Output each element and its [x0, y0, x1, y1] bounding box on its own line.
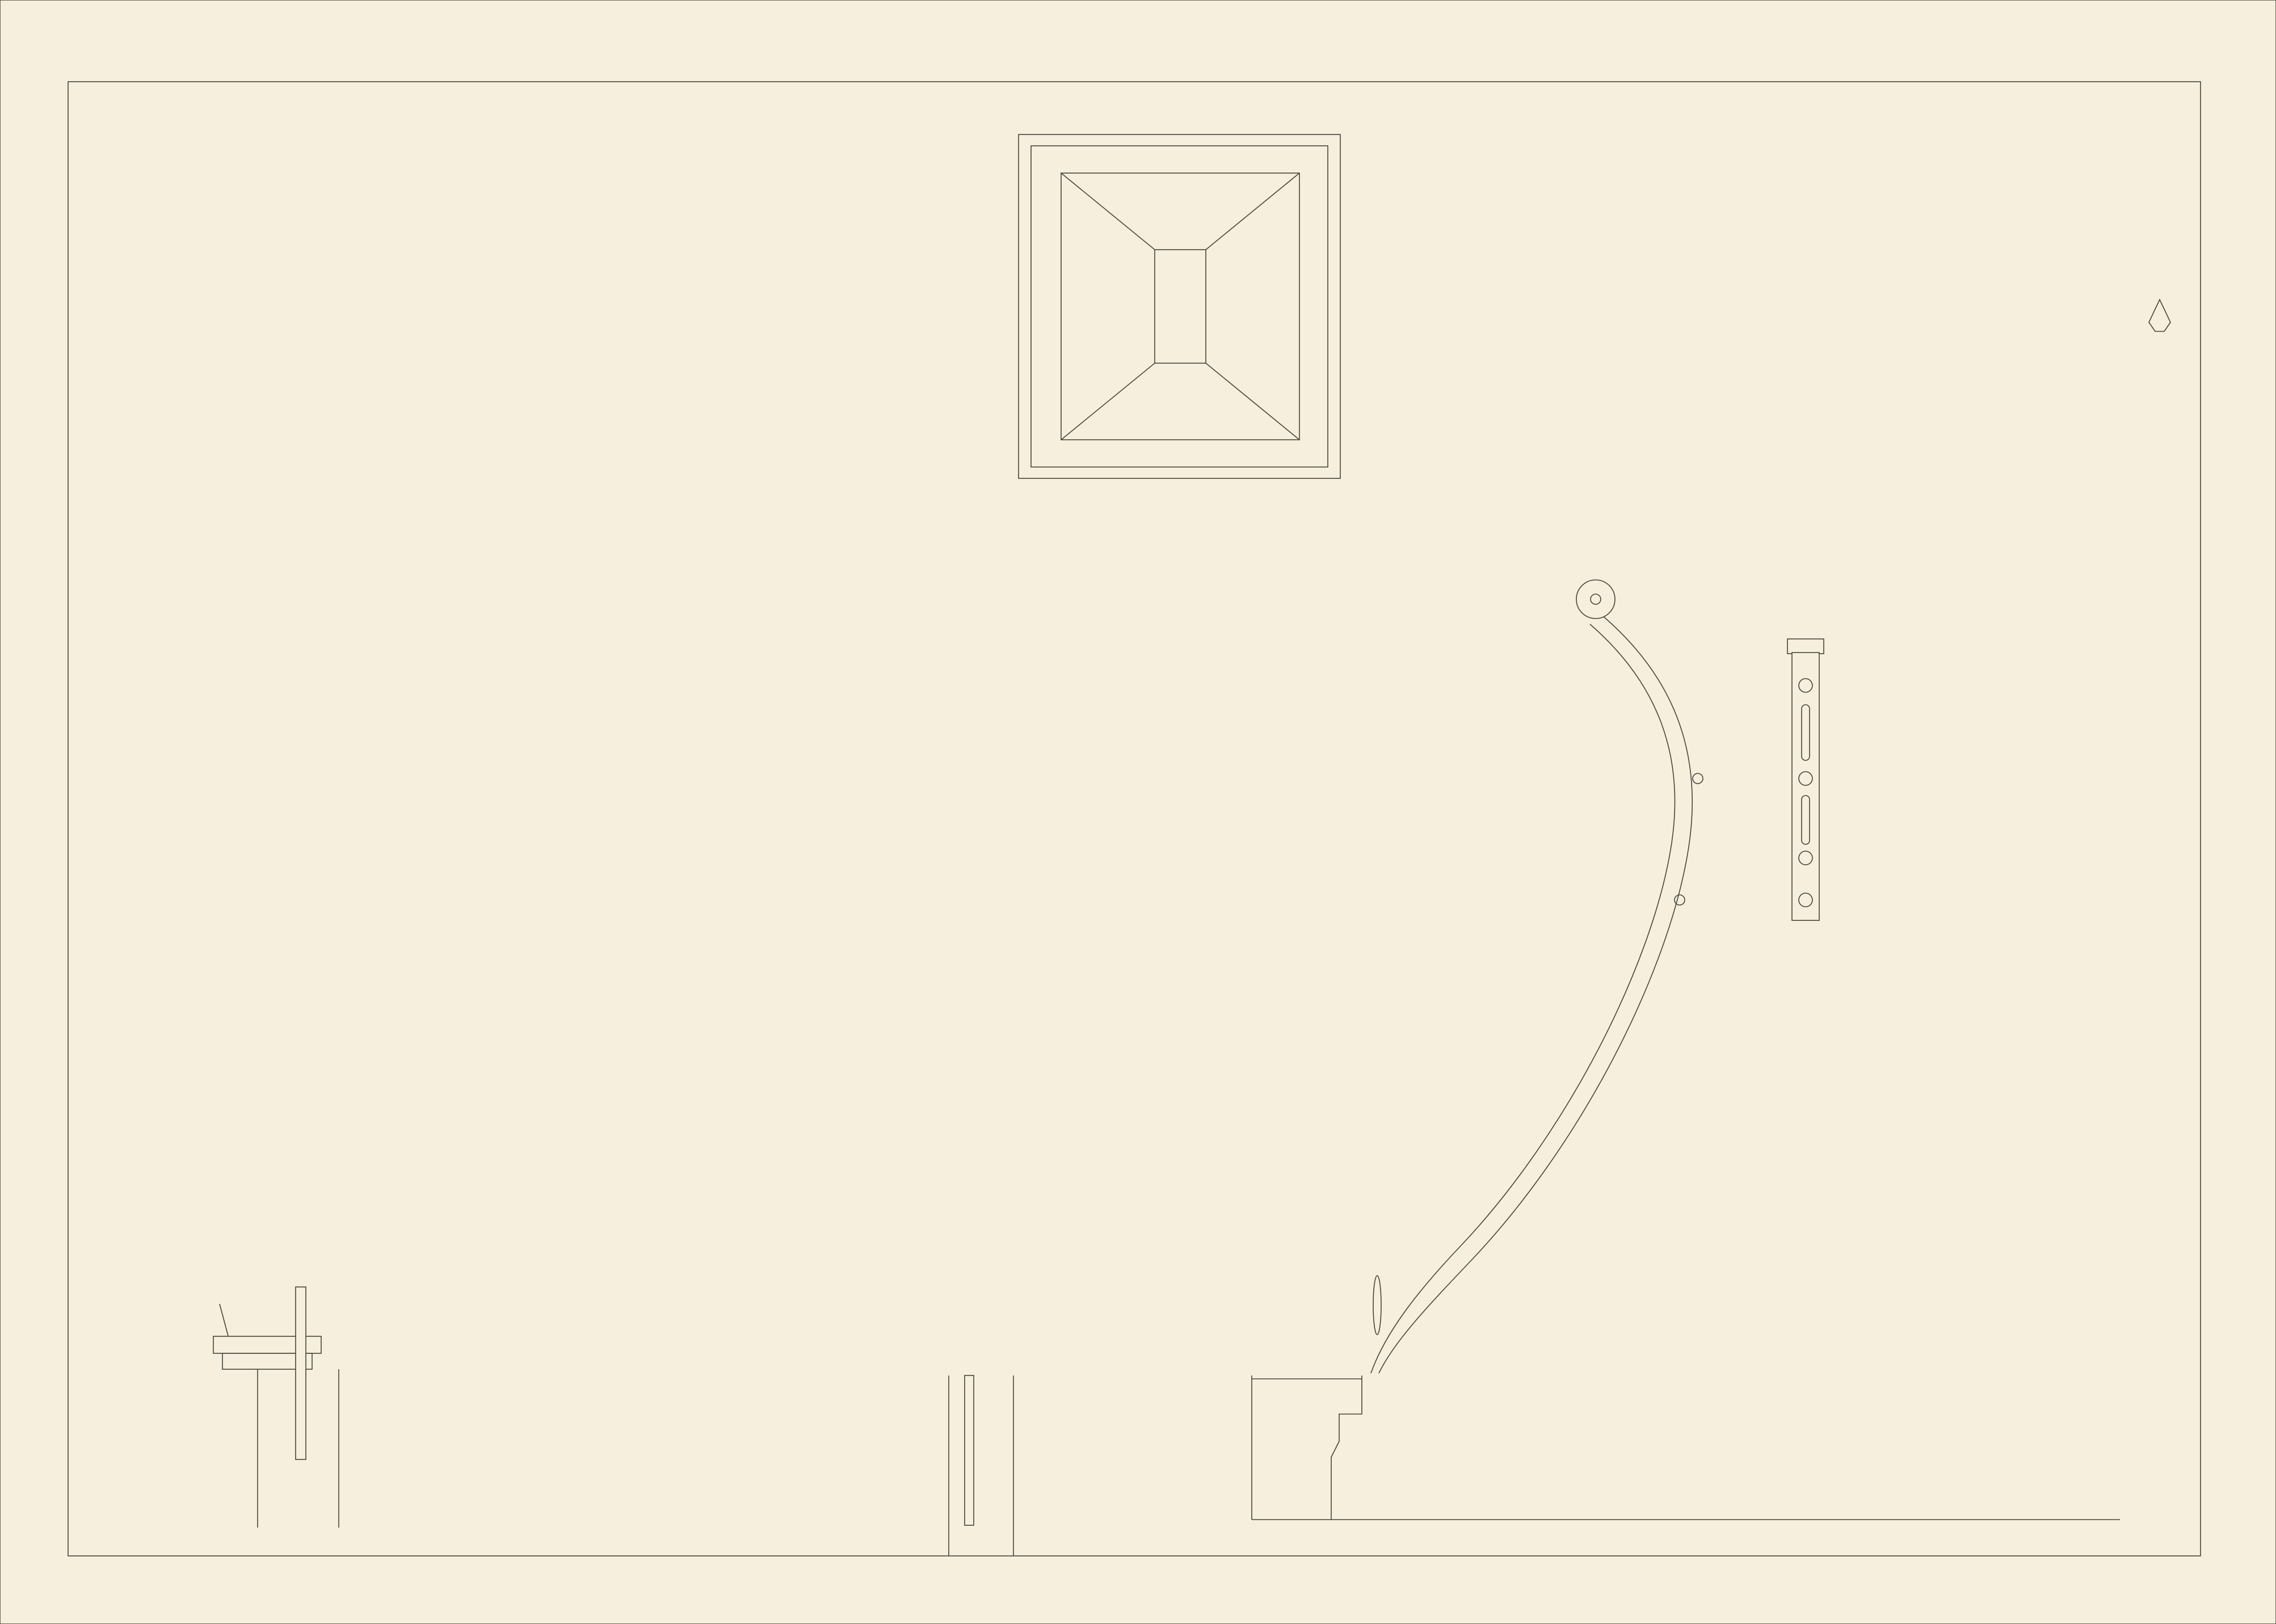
- engraving-plate: [0, 0, 2276, 1624]
- arch-rib-outer: [1379, 616, 1692, 1373]
- arch-rib-inner: [1371, 624, 1675, 1373]
- plate-drawing: [0, 0, 2276, 1624]
- left-wall-masonry: [213, 1287, 339, 1528]
- right-span-framing: [2149, 300, 2170, 331]
- right-pier-masonry: [1252, 1375, 2120, 1520]
- ridge-finial: [2149, 300, 2170, 331]
- half-truss-drawing: [213, 300, 2170, 1556]
- apex-hub-pin: [1576, 580, 1615, 619]
- paper-background: [0, 0, 2276, 1624]
- roof-plan-drawing: [1019, 134, 1340, 478]
- rib-foot-slot: [1373, 1276, 1381, 1335]
- hanging-plate: [965, 1375, 974, 1525]
- slotted-junction-plate: [1675, 639, 1824, 920]
- middle-column-masonry: [949, 1375, 1013, 1556]
- tie-rod-eye: [1675, 895, 1685, 905]
- plate-border: [68, 82, 2201, 1556]
- tie-rod-eye: [1693, 773, 1703, 784]
- wall-anchor-strap: [296, 1287, 306, 1459]
- roof-lantern-opening: [1155, 250, 1206, 363]
